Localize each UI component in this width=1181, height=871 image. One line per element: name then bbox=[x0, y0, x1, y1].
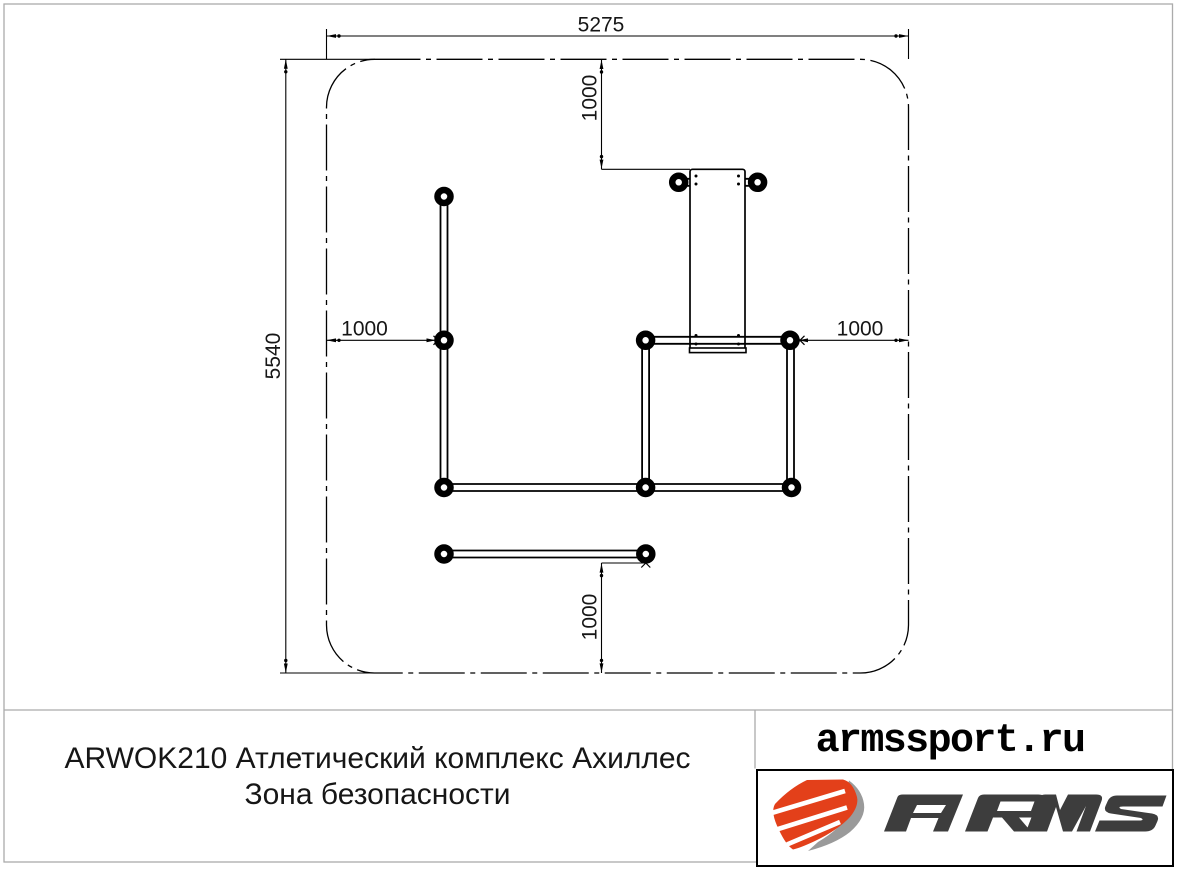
svg-text:5540: 5540 bbox=[262, 333, 285, 380]
svg-text:1000: 1000 bbox=[341, 318, 388, 341]
svg-text:1000: 1000 bbox=[837, 318, 884, 341]
svg-text:1000: 1000 bbox=[579, 75, 602, 122]
svg-text:1000: 1000 bbox=[579, 594, 602, 641]
svg-text:5275: 5275 bbox=[578, 14, 625, 37]
